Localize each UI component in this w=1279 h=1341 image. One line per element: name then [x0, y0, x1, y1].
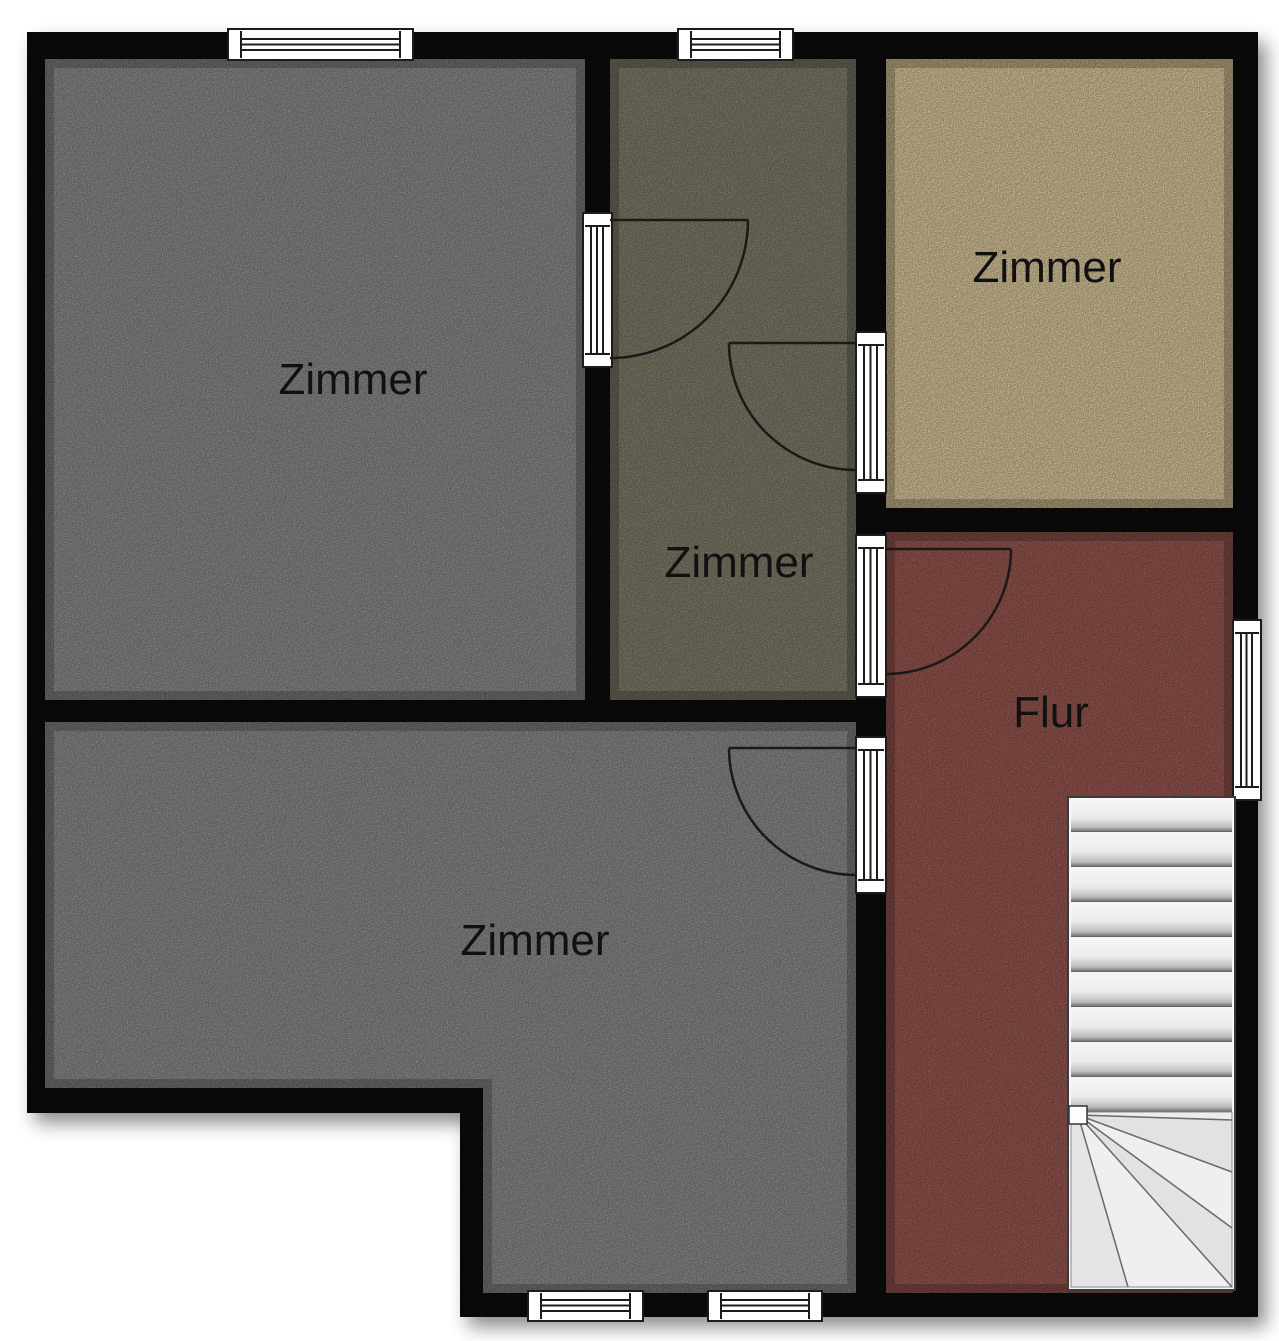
window-bottom-left: [528, 1291, 643, 1321]
staircase: [1068, 797, 1235, 1290]
label-zimmer-bottom: Zimmer: [460, 916, 609, 965]
label-zimmer-top-right: Zimmer: [972, 243, 1121, 292]
window-bottom-right: [708, 1291, 822, 1321]
window-top-left: [228, 29, 413, 60]
door-frame-flur-to-bottom: [856, 737, 886, 893]
floorplan: Zimmer Zimmer Zimmer Flur Zimmer: [0, 0, 1279, 1341]
door-frame-middle-to-flur: [856, 535, 886, 697]
window-top-middle: [678, 29, 793, 60]
label-zimmer-middle: Zimmer: [664, 538, 813, 587]
window-right-flur: [1233, 620, 1261, 800]
staircase-straight-treads: [1071, 800, 1232, 1112]
door-frame-middle-to-topright: [856, 332, 886, 493]
door-frame-topleft-to-middle: [583, 213, 612, 367]
label-zimmer-top-left: Zimmer: [278, 355, 427, 404]
label-flur: Flur: [1013, 688, 1089, 737]
staircase-newel-post: [1069, 1106, 1087, 1124]
